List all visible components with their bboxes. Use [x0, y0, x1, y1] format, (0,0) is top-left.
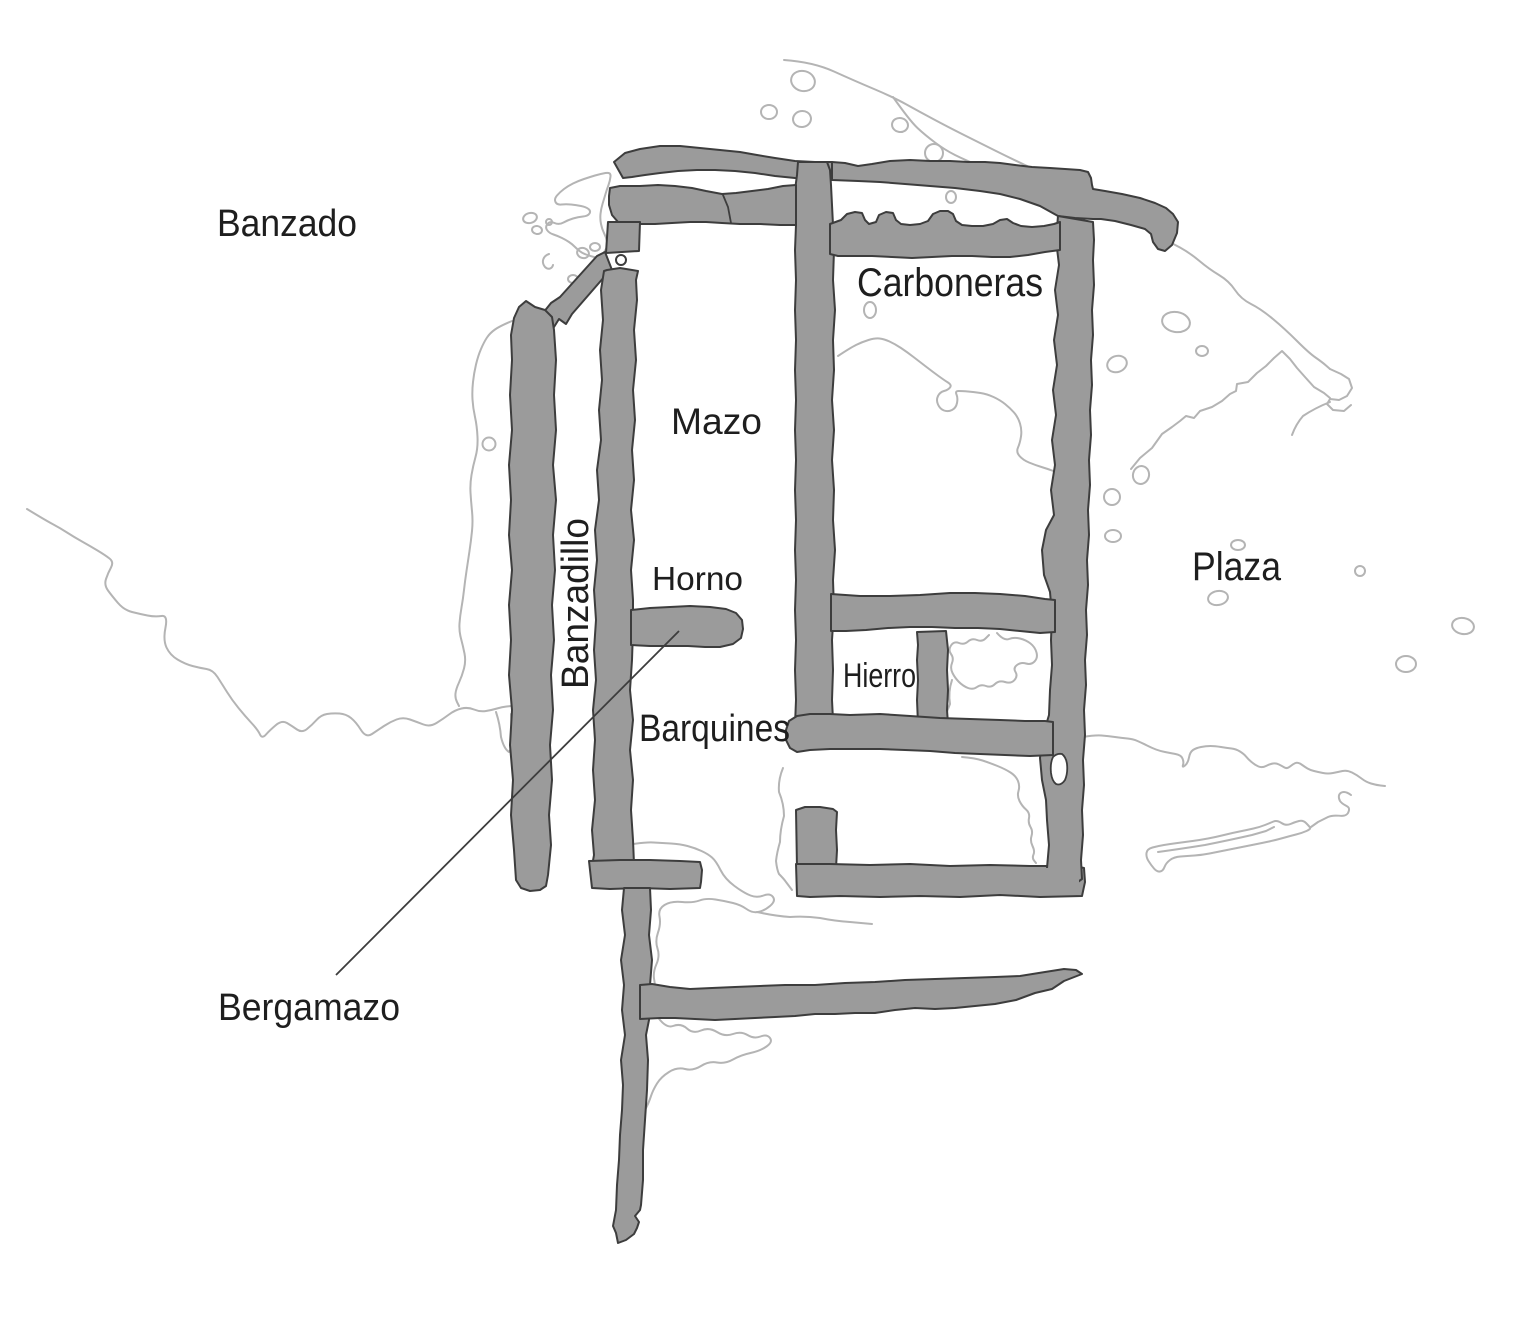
svg-text:Mazo: Mazo — [671, 401, 762, 442]
svg-text:Plaza: Plaza — [1192, 545, 1282, 589]
svg-text:Banzadillo: Banzadillo — [555, 518, 597, 689]
svg-text:Horno: Horno — [652, 560, 743, 597]
svg-text:Bergamazo: Bergamazo — [218, 987, 400, 1029]
svg-text:Hierro: Hierro — [843, 657, 916, 695]
svg-text:Banzado: Banzado — [217, 203, 357, 245]
svg-text:Barquines: Barquines — [639, 708, 790, 750]
svg-text:Carboneras: Carboneras — [857, 261, 1043, 305]
